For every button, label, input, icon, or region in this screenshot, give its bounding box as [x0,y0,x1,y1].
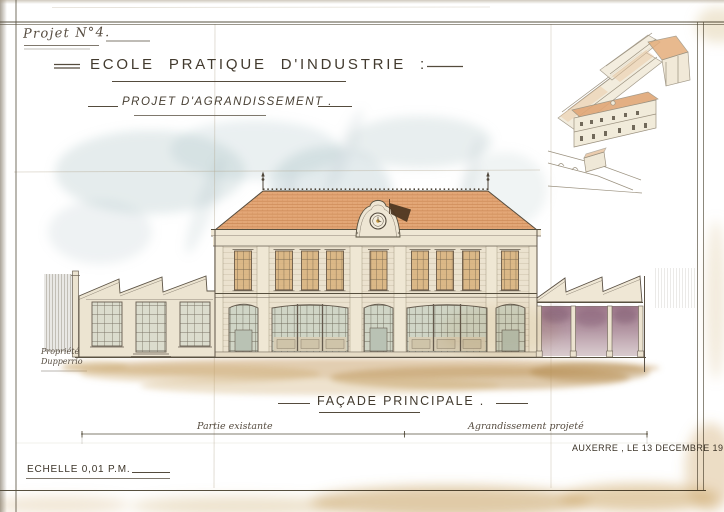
drawing-graphics [0,0,724,512]
upper-windows [233,250,521,291]
left-workshop-wing [79,276,215,357]
property-note-line2: Dupperrio [41,357,83,366]
extension-sawtooth-roof [537,276,642,302]
sheet-title: ECOLE PRATIQUE D'INDUSTRIE : [90,56,427,73]
ground-wash [60,358,660,395]
wing-window [92,302,122,346]
clock-icon [370,213,386,229]
scale-note: ECHELLE 0,01 P.M. [27,464,130,475]
place-and-date: AUXERRE , LE 13 DECEMBRE 1916 [572,443,724,453]
property-note-line1: Propriété [41,347,79,356]
sheet-subtitle: PROJET D'AGRANDISSEMENT . [122,96,333,108]
drawing-caption: FAÇADE PRINCIPALE . [317,394,485,408]
wing-window [180,302,210,346]
left-boundary-wall [44,271,80,357]
extension-wing [536,268,696,372]
scanned-drawing-sheet: { "sheet": { "project_number": "Projet N… [0,0,724,512]
property-note: Propriété Dupperrio [41,347,101,367]
project-number: Projet N°4. [23,25,111,42]
dimension-line [81,431,648,444]
wing-door [136,302,166,352]
background-hatch [654,268,696,308]
label-existing-part: Partie existante [197,421,273,432]
label-extension-part: Agrandissement projeté [468,421,584,432]
perspective-sketch [548,33,690,468]
